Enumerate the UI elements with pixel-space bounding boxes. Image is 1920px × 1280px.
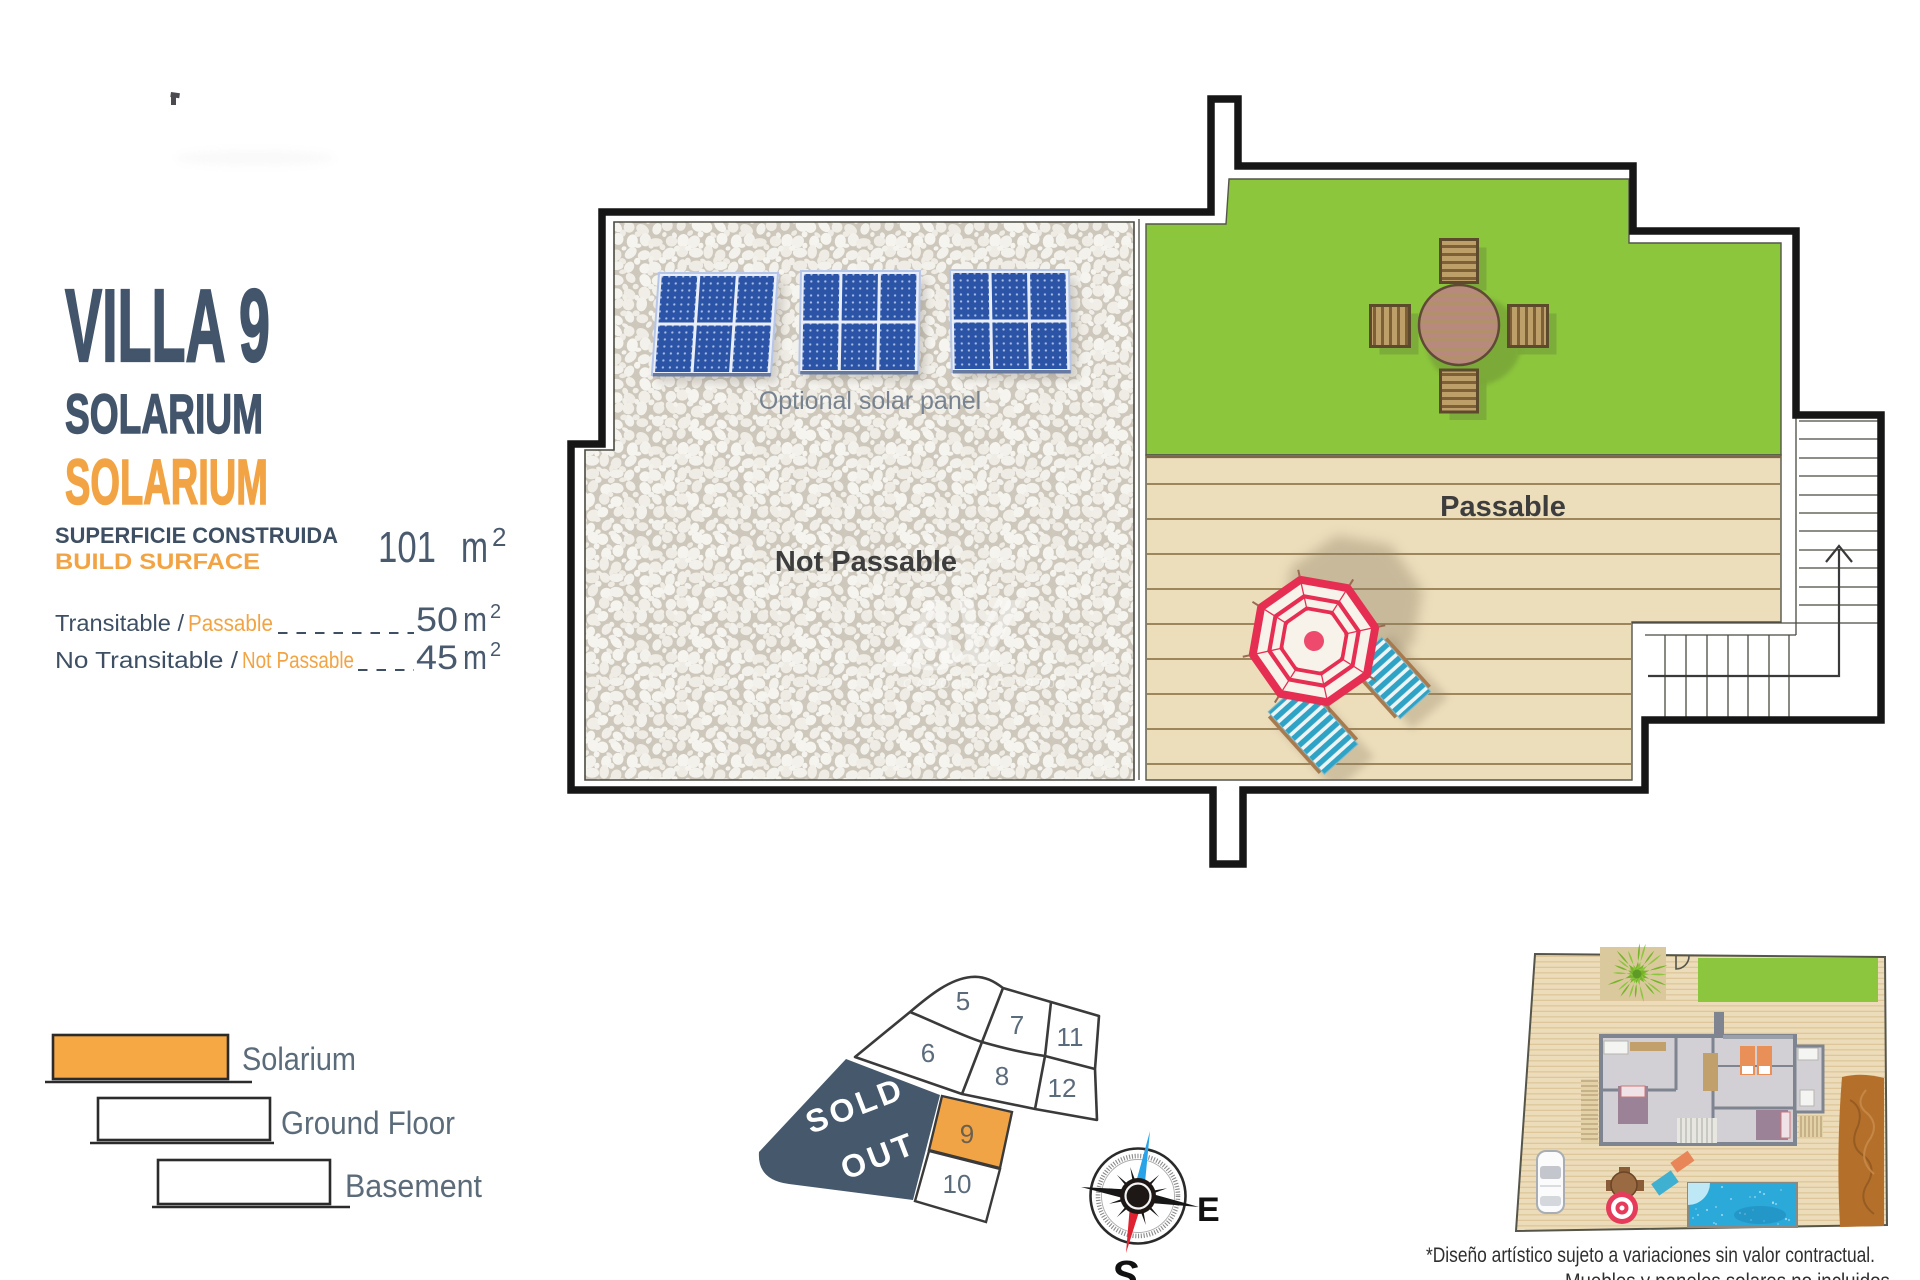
svg-text:5: 5: [956, 986, 970, 1016]
svg-text:SOLARIUM: SOLARIUM: [65, 446, 268, 518]
svg-text:SOLARIUM: SOLARIUM: [65, 382, 263, 445]
svg-text:9: 9: [960, 1119, 974, 1149]
svg-text:VILLA 9: VILLA 9: [65, 268, 270, 383]
svg-text:Ground Floor: Ground Floor: [281, 1105, 455, 1141]
svg-text:Transitable /: Transitable /: [55, 610, 184, 636]
svg-text:Passable: Passable: [188, 610, 273, 636]
svg-text:50m2: 50m2: [416, 601, 501, 639]
svg-text:S: S: [1111, 1252, 1138, 1280]
svg-text:Basement: Basement: [345, 1168, 482, 1204]
svg-text:101m2: 101m2: [378, 522, 506, 572]
svg-text:Not Passable: Not Passable: [242, 647, 354, 673]
svg-text:*Diseño artístico sujeto a var: *Diseño artístico sujeto a variaciones s…: [1426, 1243, 1875, 1267]
svg-text:BUILD SURFACE: BUILD SURFACE: [55, 549, 260, 574]
svg-text:No Transitable /: No Transitable /: [55, 647, 239, 673]
svg-text:7: 7: [1010, 1010, 1024, 1040]
svg-text:6: 6: [921, 1038, 935, 1068]
svg-text:10: 10: [943, 1169, 972, 1199]
svg-text:E: E: [1197, 1191, 1220, 1229]
svg-text:AV: AV: [892, 580, 1022, 687]
svg-text:Solarium: Solarium: [242, 1041, 356, 1077]
svg-text:Passable: Passable: [1440, 491, 1566, 523]
svg-text:12: 12: [1048, 1073, 1077, 1103]
svg-text:45m2: 45m2: [416, 639, 501, 677]
svg-text:Optional solar panel: Optional solar panel: [759, 387, 981, 415]
svg-text:11: 11: [1057, 1022, 1084, 1052]
svg-text:Not Passable: Not Passable: [775, 546, 957, 578]
svg-text:SUPERFICIE CONSTRUIDA: SUPERFICIE CONSTRUIDA: [55, 523, 338, 548]
svg-text:Muebles y paneles solares no i: Muebles y paneles solares no incluidos.: [1565, 1269, 1895, 1280]
svg-text:8: 8: [995, 1061, 1009, 1091]
svg-text:CABO ROIG 1970: CABO ROIG 1970: [903, 676, 1058, 691]
